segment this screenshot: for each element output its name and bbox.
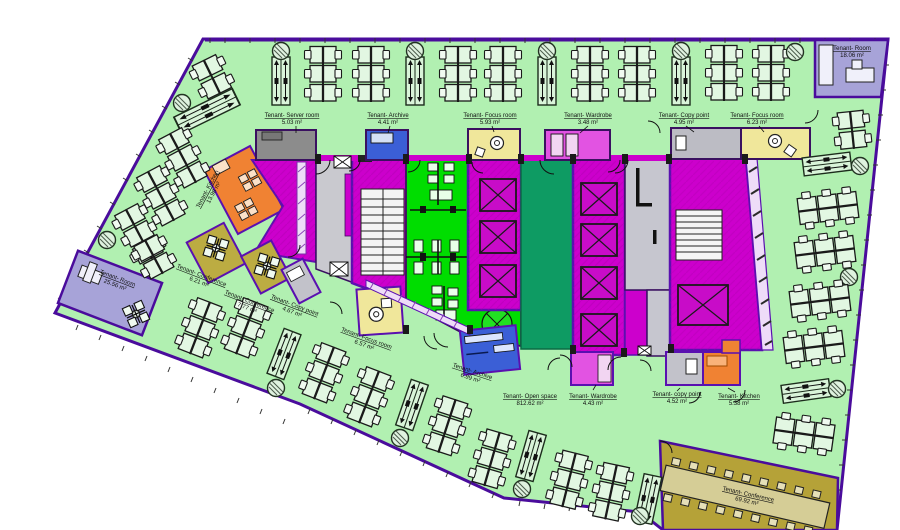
svg-text:5.03 m²: 5.03 m² bbox=[282, 120, 302, 126]
svg-text:Tenant- copy point: Tenant- copy point bbox=[652, 392, 701, 398]
svg-text:4.95 m²: 4.95 m² bbox=[674, 120, 694, 126]
svg-text:Tenant- Wardrobe: Tenant- Wardrobe bbox=[569, 394, 617, 400]
svg-text:4.41 m²: 4.41 m² bbox=[378, 120, 398, 126]
svg-text:Tenant- Wardrobe: Tenant- Wardrobe bbox=[564, 113, 612, 119]
svg-text:Tenant- Copy point: Tenant- Copy point bbox=[659, 113, 710, 119]
svg-text:18.06 m²: 18.06 m² bbox=[840, 53, 864, 59]
svg-text:5.93 m²: 5.93 m² bbox=[480, 120, 500, 126]
svg-text:Tenant- Kitchen: Tenant- Kitchen bbox=[718, 394, 760, 400]
svg-text:4.43 m²: 4.43 m² bbox=[583, 401, 603, 407]
svg-text:Tenant- Focus room: Tenant- Focus room bbox=[730, 113, 783, 119]
svg-text:6.23 m²: 6.23 m² bbox=[747, 120, 767, 126]
svg-text:Tenant- Room: Tenant- Room bbox=[833, 46, 871, 52]
svg-text:Tenant- Archive: Tenant- Archive bbox=[367, 113, 409, 119]
svg-text:4.52 m²: 4.52 m² bbox=[667, 399, 687, 405]
svg-text:812.62 m²: 812.62 m² bbox=[516, 401, 543, 407]
svg-text:Tenant- Server room: Tenant- Server room bbox=[265, 113, 320, 119]
svg-text:5.38 m²: 5.38 m² bbox=[729, 401, 749, 407]
svg-text:Tenant- Open space: Tenant- Open space bbox=[503, 394, 558, 400]
svg-text:Tenant- Focus room: Tenant- Focus room bbox=[463, 113, 516, 119]
svg-text:3.48 m²: 3.48 m² bbox=[578, 120, 598, 126]
